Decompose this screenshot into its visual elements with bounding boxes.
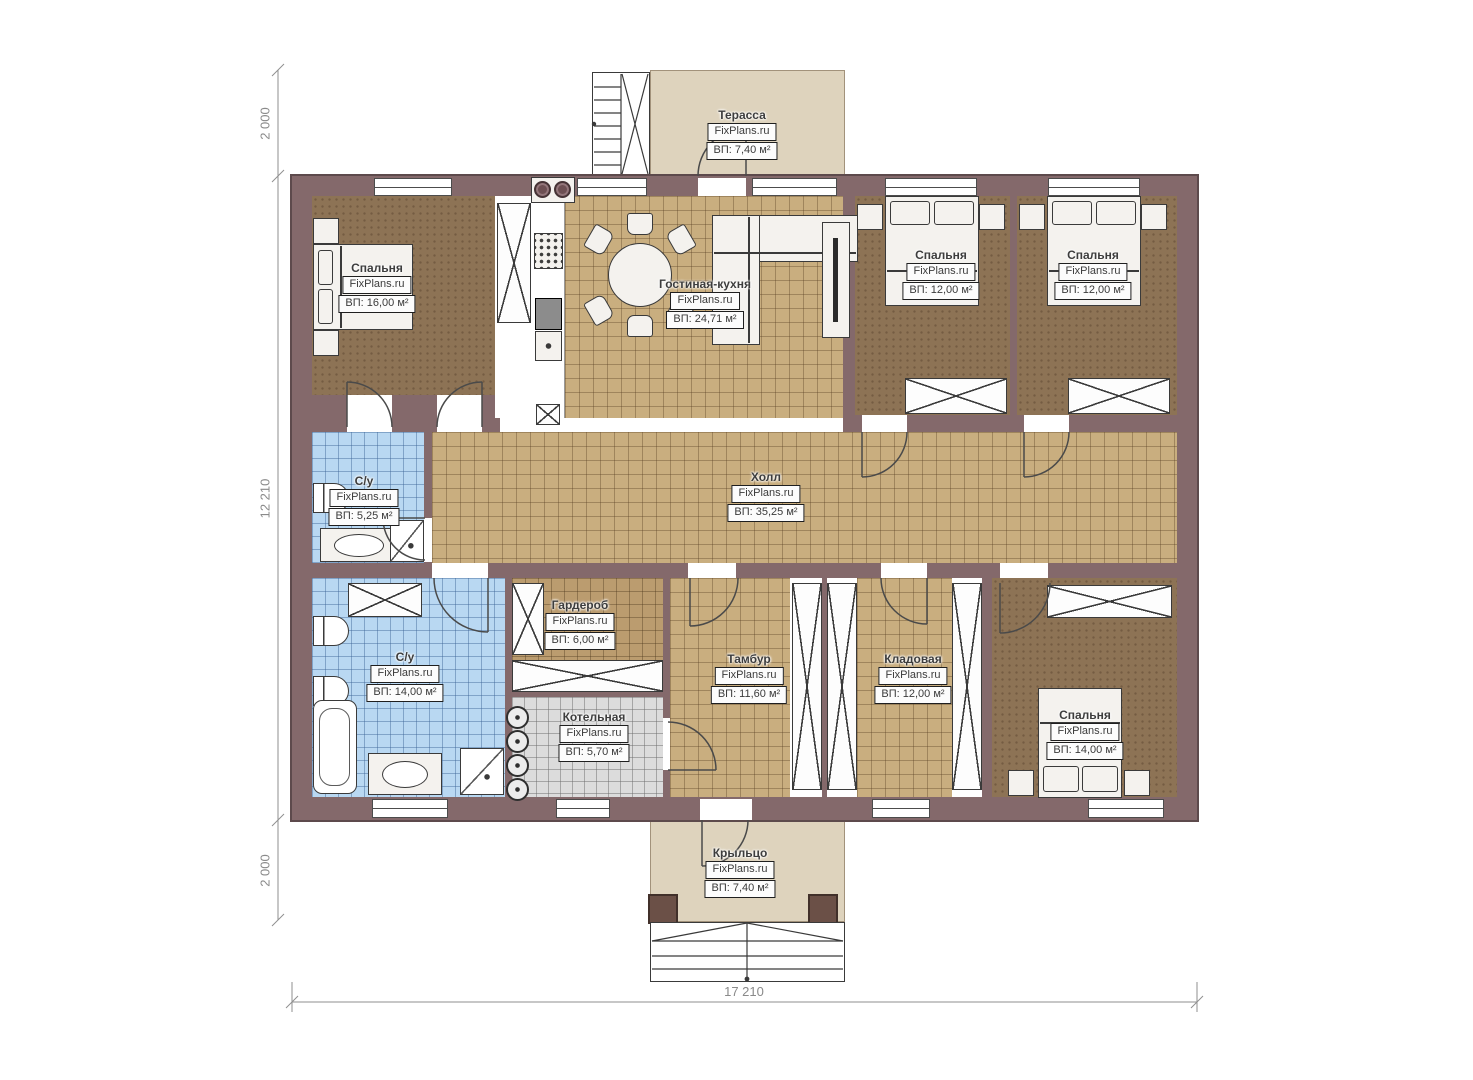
area-plate: ВП: 5,70 м² xyxy=(558,744,629,762)
wardrobe-icon xyxy=(1068,378,1170,414)
nightstand-icon xyxy=(1008,770,1034,796)
room-title: Тамбур xyxy=(727,652,771,666)
room-label-boiler: Котельная FixPlans.ru ВП: 5,70 м² xyxy=(558,710,629,762)
bath-cabinet-icon xyxy=(348,583,422,617)
pillow-icon xyxy=(318,250,333,285)
closet-icon xyxy=(827,583,857,790)
room-label-bedroom4: Спальня FixPlans.ru ВП: 14,00 м² xyxy=(1046,708,1123,760)
boiler-tank-icon xyxy=(506,754,529,777)
room-label-porch: Крыльцо FixPlans.ru ВП: 7,40 м² xyxy=(704,846,775,898)
area-plate: ВП: 7,40 м² xyxy=(706,142,777,160)
room-title: Гостиная-кухня xyxy=(659,277,751,291)
brand-plate: FixPlans.ru xyxy=(545,613,614,631)
sink-icon xyxy=(382,761,428,788)
fridge-icon xyxy=(535,298,562,330)
closet-icon xyxy=(512,660,663,692)
closet-icon xyxy=(952,583,982,790)
stove-burner-icon xyxy=(554,181,571,198)
brand-plate: FixPlans.ru xyxy=(1050,723,1119,741)
brand-plate: FixPlans.ru xyxy=(1058,263,1127,281)
door-opening-bedroom4 xyxy=(1000,563,1048,578)
area-plate: ВП: 6,00 м² xyxy=(544,632,615,650)
window-bedroom4 xyxy=(1088,799,1164,818)
nightstand-icon xyxy=(1124,770,1150,796)
dimension-label-left-middle: 12 210 xyxy=(258,474,273,524)
door-opening-storage xyxy=(881,563,927,578)
nightstand-icon xyxy=(1141,204,1167,230)
area-plate: ВП: 35,25 м² xyxy=(727,504,804,522)
terrace-stairs-icon xyxy=(592,72,650,176)
pillow-icon xyxy=(1096,201,1136,225)
chair-icon xyxy=(627,315,653,337)
window-bath2 xyxy=(372,799,448,818)
area-plate: ВП: 12,00 м² xyxy=(1054,282,1131,300)
boiler-tank-icon xyxy=(506,730,529,753)
door-opening-bedroom3 xyxy=(1024,415,1069,432)
room-label-wardrobe: Гардероб FixPlans.ru ВП: 6,00 м² xyxy=(544,598,615,650)
bathtub-inner xyxy=(319,708,350,786)
shower-icon xyxy=(390,520,424,562)
boiler-tank-icon xyxy=(506,706,529,729)
window-bedroom1 xyxy=(374,178,452,196)
pillow-icon xyxy=(318,289,333,324)
room-title: С/у xyxy=(355,474,374,488)
room-title: С/у xyxy=(396,650,415,664)
room-label-bath1: С/у FixPlans.ru ВП: 5,25 м² xyxy=(328,474,399,526)
closet-icon xyxy=(512,583,544,655)
brand-plate: FixPlans.ru xyxy=(731,485,800,503)
tv-icon xyxy=(833,238,838,322)
brand-plate: FixPlans.ru xyxy=(714,667,783,685)
kitchen-sink-icon xyxy=(535,331,562,361)
room-label-hall: Холл FixPlans.ru ВП: 35,25 м² xyxy=(727,470,804,522)
area-plate: ВП: 12,00 м² xyxy=(902,282,979,300)
area-plate: ВП: 7,40 м² xyxy=(704,880,775,898)
room-label-terrace: Терасса FixPlans.ru ВП: 7,40 м² xyxy=(706,108,777,160)
window-living xyxy=(752,178,837,196)
wardrobe-icon xyxy=(905,378,1007,414)
door-opening-bedroom1-a xyxy=(347,395,392,432)
wardrobe-icon xyxy=(1047,585,1172,618)
brand-plate: FixPlans.ru xyxy=(878,667,947,685)
floor-plan: 2 000 12 210 2 000 17 210 Терасса FixPla… xyxy=(0,0,1473,1080)
nightstand-icon xyxy=(313,218,339,244)
window-bedroom3 xyxy=(1048,178,1140,196)
brand-plate: FixPlans.ru xyxy=(342,276,411,294)
door-opening-tambour xyxy=(688,563,736,578)
room-title: Кладовая xyxy=(884,652,941,666)
window-boiler xyxy=(556,799,610,818)
porch-column-right xyxy=(808,894,838,924)
brand-plate: FixPlans.ru xyxy=(329,489,398,507)
wardrobe-icon xyxy=(497,203,531,323)
window-kitchen xyxy=(577,178,647,196)
brand-plate: FixPlans.ru xyxy=(705,861,774,879)
nightstand-icon xyxy=(857,204,883,230)
nightstand-icon xyxy=(979,204,1005,230)
door-opening-entrance xyxy=(700,799,752,820)
pillow-icon xyxy=(934,201,974,225)
shower-icon xyxy=(460,748,504,795)
window-bedroom2 xyxy=(885,178,977,196)
room-title: Холл xyxy=(751,470,781,484)
pillow-icon xyxy=(1043,766,1079,792)
dimension-label-left-top: 2 000 xyxy=(258,99,273,149)
room-title: Котельная xyxy=(563,710,626,724)
oven-icon xyxy=(534,233,563,269)
room-title: Спальня xyxy=(1059,708,1111,722)
area-plate: ВП: 16,00 м² xyxy=(338,295,415,313)
brand-plate: FixPlans.ru xyxy=(707,123,776,141)
nightstand-icon xyxy=(313,330,339,356)
room-label-storage: Кладовая FixPlans.ru ВП: 12,00 м² xyxy=(874,652,951,704)
door-opening-bedroom2 xyxy=(862,415,907,432)
closet-icon xyxy=(792,583,822,790)
toilet-icon xyxy=(313,616,349,646)
kitchen-cabinet-icon xyxy=(536,404,560,425)
area-plate: ВП: 5,25 м² xyxy=(328,508,399,526)
window-storage xyxy=(872,799,930,818)
brand-plate: FixPlans.ru xyxy=(559,725,628,743)
pillow-icon xyxy=(1052,201,1092,225)
door-opening-bath1 xyxy=(424,518,432,562)
room-title: Терасса xyxy=(718,108,766,122)
nightstand-icon xyxy=(1019,204,1045,230)
area-plate: ВП: 14,00 м² xyxy=(1046,742,1123,760)
area-plate: ВП: 12,00 м² xyxy=(874,686,951,704)
room-label-bedroom3: Спальня FixPlans.ru ВП: 12,00 м² xyxy=(1054,248,1131,300)
brand-plate: FixPlans.ru xyxy=(670,292,739,310)
room-title: Спальня xyxy=(351,261,403,275)
stove-burner-icon xyxy=(534,181,551,198)
room-label-living: Гостиная-кухня FixPlans.ru ВП: 24,71 м² xyxy=(659,277,751,329)
room-title: Гардероб xyxy=(552,598,609,612)
room-label-bedroom2: Спальня FixPlans.ru ВП: 12,00 м² xyxy=(902,248,979,300)
porch-steps-icon xyxy=(650,922,845,982)
room-title: Крыльцо xyxy=(713,846,768,860)
door-opening-boiler xyxy=(663,718,670,770)
room-title: Спальня xyxy=(1067,248,1119,262)
area-plate: ВП: 14,00 м² xyxy=(366,684,443,702)
brand-plate: FixPlans.ru xyxy=(370,665,439,683)
dimension-label-bottom: 17 210 xyxy=(714,984,774,999)
porch-column-left xyxy=(648,894,678,924)
chair-icon xyxy=(627,213,653,235)
pillow-icon xyxy=(890,201,930,225)
area-plate: ВП: 24,71 м² xyxy=(666,311,743,329)
dimension-label-left-bottom: 2 000 xyxy=(258,846,273,896)
door-opening-terrace xyxy=(698,178,746,196)
room-title: Спальня xyxy=(915,248,967,262)
room-label-tambour: Тамбур FixPlans.ru ВП: 11,60 м² xyxy=(711,652,787,704)
sink-icon xyxy=(334,534,384,557)
door-opening-bedroom1-b xyxy=(437,395,482,432)
boiler-tank-icon xyxy=(506,778,529,801)
room-label-bedroom1: Спальня FixPlans.ru ВП: 16,00 м² xyxy=(338,261,415,313)
room-label-bath2: С/у FixPlans.ru ВП: 14,00 м² xyxy=(366,650,443,702)
door-opening-bath2 xyxy=(432,563,488,578)
pillow-icon xyxy=(1082,766,1118,792)
area-plate: ВП: 11,60 м² xyxy=(711,686,787,704)
brand-plate: FixPlans.ru xyxy=(906,263,975,281)
